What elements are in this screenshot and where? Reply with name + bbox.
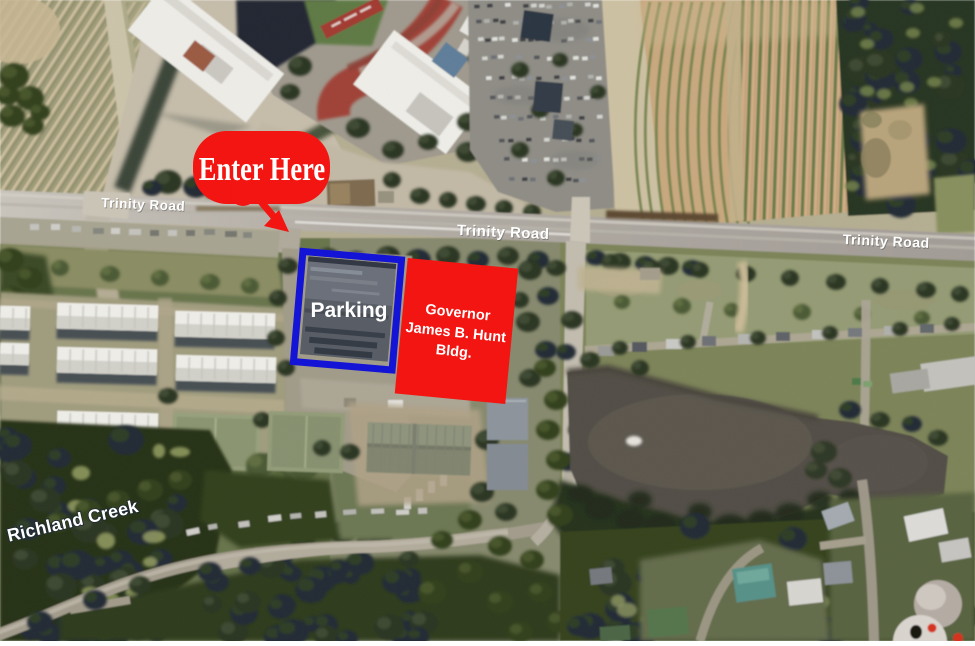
svg-text:Enter Here: Enter Here — [199, 150, 325, 188]
svg-text:Parking: Parking — [310, 299, 387, 322]
